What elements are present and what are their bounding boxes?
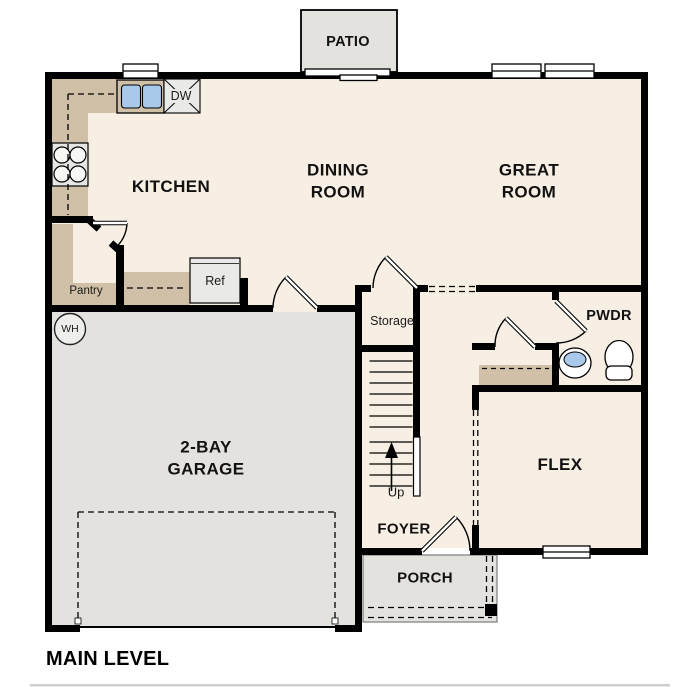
garage-label: 2-BAY GARAGE [167,436,244,480]
foyer-label: FOYER [377,521,430,538]
sink-basin [143,85,162,108]
great-room-label: GREAT ROOM [499,159,559,203]
wall-segment [240,278,248,312]
kitchen-label: KITCHEN [132,176,210,198]
wall-segment [641,72,648,555]
wall-segment [45,305,273,312]
porch-label: PORCH [397,570,453,587]
wall-segment [45,72,52,632]
refrigerator-label: Ref [205,274,224,288]
wall-segment [552,292,559,300]
powder-sink-bowl [564,352,586,367]
wall-segment [45,625,80,632]
garage-door-corner [332,618,338,624]
porch-post [485,604,497,616]
wall-segment [355,285,362,632]
wall-segment [472,385,648,392]
wall-segment [355,548,422,555]
dining-room-label: DINING ROOM [307,159,369,203]
page-edge-line [30,684,670,687]
wall-segment [472,343,495,350]
wall-segment [552,343,559,392]
wall-segment [535,343,559,350]
stove-burner [70,147,86,163]
garage-floor-edge [80,626,335,628]
wall-segment [45,216,93,223]
patio-sliding-door [340,75,377,81]
patio-label: PATIO [326,34,370,50]
wall-segment [417,285,428,292]
stove-burner [70,166,86,182]
wall-segment [472,392,479,410]
pantry-label: Pantry [69,285,102,297]
porch-area [363,555,497,622]
dishwasher-label: DW [170,89,193,103]
wall-segment [472,525,479,555]
garage-door-corner [75,618,81,624]
stairs-up-label: Up [388,485,405,500]
floor-plan: PATIO KITCHEN DINING ROOM GREAT ROOM 2-B… [0,0,687,687]
closet-shelf [479,365,552,385]
floor-plan-drawing [0,0,687,687]
stair-railing [414,437,421,496]
water-heater-label: WH [61,323,79,335]
wall-segment [362,345,420,352]
plan-title: MAIN LEVEL [46,648,169,671]
wall-segment [476,285,648,292]
storage-label: Storage [370,314,414,328]
wall-segment [362,285,371,292]
sink-basin [122,85,141,108]
wall-segment [413,285,420,437]
toilet-base [606,366,632,380]
powder-room-label: PWDR [586,308,632,324]
flex-label: FLEX [537,454,582,476]
